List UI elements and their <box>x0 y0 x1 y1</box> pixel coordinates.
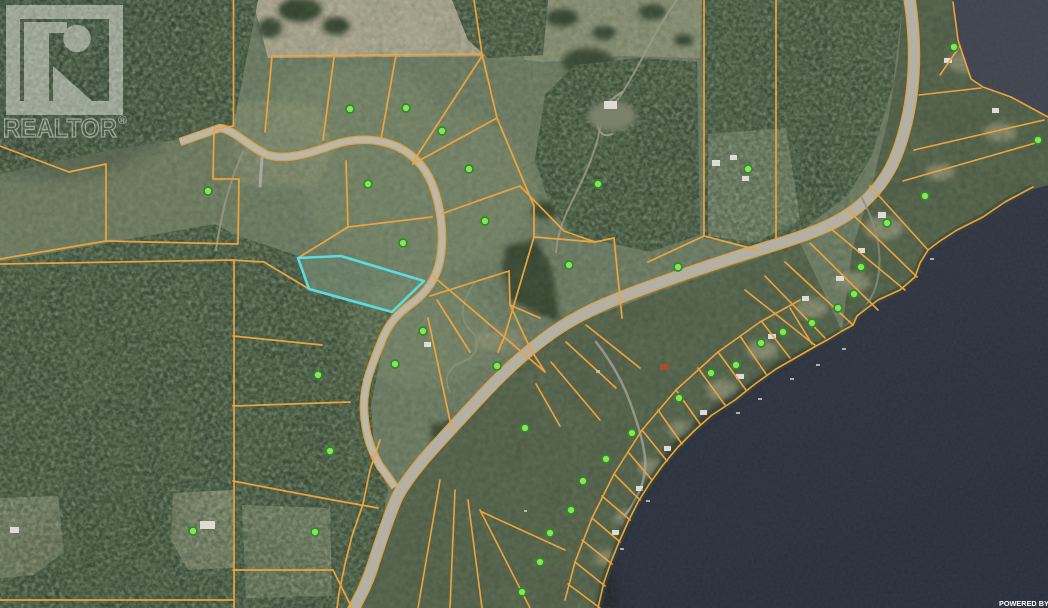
svg-text:®: ® <box>118 113 127 127</box>
svg-text:POWERED BY: POWERED BY <box>999 599 1048 608</box>
svg-text:REALTOR: REALTOR <box>3 113 117 143</box>
